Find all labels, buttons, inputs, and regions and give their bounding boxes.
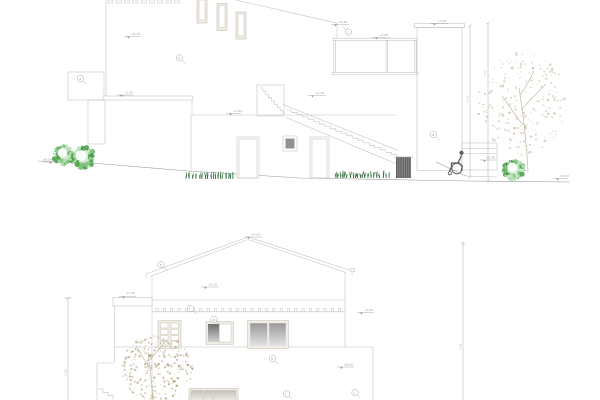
upper-windows bbox=[197, 0, 246, 39]
keynote: b bbox=[176, 55, 186, 64]
door-1 bbox=[237, 137, 259, 178]
svg-text:+4.15: +4.15 bbox=[315, 91, 324, 95]
svg-text:+5.05: +5.05 bbox=[379, 33, 388, 37]
svg-text:g: g bbox=[213, 318, 215, 322]
ground-line bbox=[38, 161, 570, 182]
stair-tower bbox=[415, 24, 465, 171]
tree-foliage bbox=[121, 335, 193, 400]
svg-text:+7.45: +7.45 bbox=[251, 233, 260, 237]
level-marker: +3.05 bbox=[357, 308, 374, 315]
entrance-stair bbox=[97, 363, 113, 400]
stair-stringer bbox=[286, 118, 398, 165]
lattice-window bbox=[158, 321, 181, 349]
svg-text:±0.00: ±0.00 bbox=[560, 174, 569, 178]
roof-tile-row bbox=[108, 0, 179, 3]
left-volume bbox=[68, 72, 193, 144]
window-wide bbox=[248, 321, 289, 349]
level-marker: +4.15 bbox=[124, 32, 140, 39]
lower-window-band bbox=[189, 389, 238, 400]
tree-foliage bbox=[477, 52, 566, 156]
keynote: f bbox=[187, 305, 196, 314]
dimension-text: 7.10 bbox=[466, 96, 470, 103]
dimension-text: 3.30 bbox=[64, 369, 68, 376]
dimension-text: 7.45 bbox=[459, 343, 463, 350]
dimension-text: 7.55 bbox=[484, 70, 488, 77]
terrace-slab bbox=[332, 72, 418, 74]
stair-railing bbox=[283, 105, 398, 151]
svg-text:+7.55: +7.55 bbox=[437, 19, 446, 23]
svg-text:i: i bbox=[285, 392, 286, 396]
keynote: j bbox=[352, 389, 361, 398]
dimension-line: 7.10 bbox=[466, 24, 472, 178]
keynote: d bbox=[430, 131, 440, 140]
house-walls bbox=[113, 272, 373, 400]
svg-text:+5.10: +5.10 bbox=[208, 283, 217, 287]
svg-text:j: j bbox=[353, 391, 355, 395]
svg-text:±0.00: ±0.00 bbox=[43, 158, 52, 162]
dimension-line: 7.45 bbox=[459, 242, 465, 400]
svg-text:h: h bbox=[271, 357, 273, 361]
dimension-line: 3.30 bbox=[64, 297, 72, 400]
tree-trunk bbox=[519, 88, 528, 172]
stair-steps bbox=[286, 110, 397, 157]
svg-text:+4.15: +4.15 bbox=[131, 32, 140, 36]
svg-text:+5.90: +5.90 bbox=[338, 20, 347, 24]
upper-stair-enclosure bbox=[257, 85, 284, 116]
tree-branch bbox=[502, 96, 523, 125]
level-marker: +4.15 bbox=[308, 91, 326, 98]
pitched-roof bbox=[146, 237, 355, 278]
keynote: i bbox=[283, 391, 292, 399]
door-2 bbox=[310, 137, 329, 178]
grass-row bbox=[335, 171, 389, 178]
elevations-drawing: 7.10 7.55 +4.15 +1.35 ±0.00 +1.50 +4.15 bbox=[0, 0, 600, 400]
svg-text:b: b bbox=[178, 56, 180, 60]
bush bbox=[501, 159, 525, 181]
svg-text:±0.00: ±0.00 bbox=[344, 363, 353, 367]
svg-text:+1.50: +1.50 bbox=[233, 109, 242, 113]
level-marker: +5.90 bbox=[331, 20, 349, 27]
level-marker: ±0.00 bbox=[553, 174, 569, 181]
external-stair bbox=[257, 85, 413, 178]
level-marker: +7.45 bbox=[244, 233, 262, 240]
small-window-glazing bbox=[286, 139, 295, 149]
lower-elevation: 3.30 7.45 +7.45 +5.10 +3.30 +3.05 ±0.00 bbox=[64, 233, 465, 400]
svg-text:e: e bbox=[160, 263, 162, 267]
window-two-pane bbox=[206, 322, 233, 345]
canopy-slab bbox=[103, 96, 193, 100]
pier bbox=[88, 100, 105, 144]
window-glazing bbox=[269, 323, 286, 346]
left-parapet bbox=[113, 298, 152, 307]
level-marker: +1.50 bbox=[226, 109, 242, 116]
pergola-ticks bbox=[156, 309, 341, 312]
window-glazing bbox=[208, 324, 219, 342]
svg-text:+0.45: +0.45 bbox=[486, 156, 495, 160]
svg-text:a: a bbox=[79, 77, 81, 81]
svg-text:d: d bbox=[432, 133, 434, 137]
svg-text:+1.35: +1.35 bbox=[124, 91, 133, 95]
terrace-railing bbox=[332, 38, 418, 75]
svg-text:+3.30: +3.30 bbox=[126, 291, 135, 295]
ground-floor-wall bbox=[191, 115, 396, 178]
bush bbox=[70, 145, 95, 170]
tree-branch bbox=[520, 70, 534, 95]
upper-elevation: 7.10 7.55 +4.15 +1.35 ±0.00 +1.50 +4.15 bbox=[38, 0, 570, 182]
drawing-canvas: 7.10 7.55 +4.15 +1.35 ±0.00 +1.50 +4.15 bbox=[0, 0, 600, 400]
upper-stair-steps bbox=[260, 88, 283, 114]
keynote: c bbox=[343, 27, 352, 36]
level-marker: ±0.00 bbox=[337, 363, 354, 370]
svg-text:+3.05: +3.05 bbox=[364, 308, 373, 312]
keynote: h bbox=[269, 355, 279, 364]
svg-text:c: c bbox=[347, 30, 349, 34]
section-hatch-wall bbox=[396, 157, 411, 178]
level-marker: +5.10 bbox=[201, 283, 219, 290]
window-glazing bbox=[250, 323, 267, 346]
